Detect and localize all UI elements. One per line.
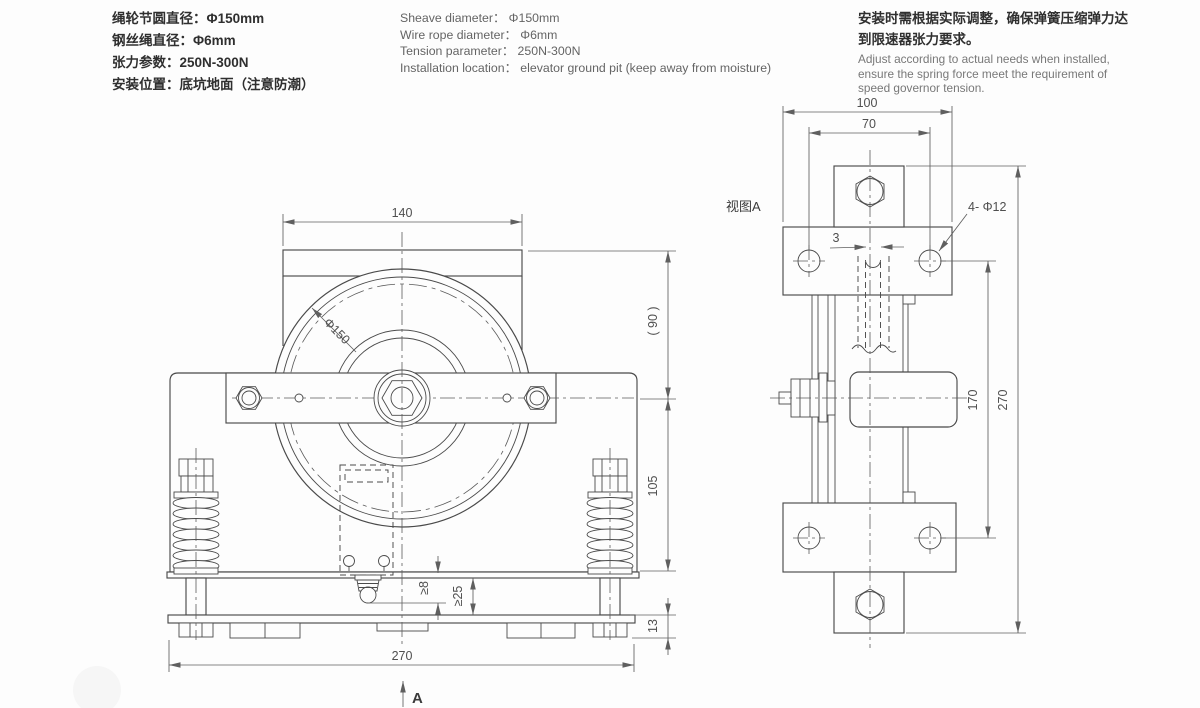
svg-text:( 90 ): ( 90 ) <box>646 306 660 335</box>
dim-ge25: ≥25 <box>451 578 473 615</box>
dim-13: 13 <box>630 598 676 655</box>
svg-text:≥25: ≥25 <box>451 586 465 607</box>
svg-text:270: 270 <box>996 390 1010 411</box>
side-view: 100 70 3 4- Φ12 <box>726 96 1026 648</box>
svg-text:170: 170 <box>966 390 980 411</box>
svg-text:140: 140 <box>392 206 413 220</box>
technical-drawing: Φ150 140 ( 90 ) 105 <box>0 0 1200 708</box>
svg-text:105: 105 <box>646 476 660 497</box>
svg-text:70: 70 <box>862 117 876 131</box>
front-view: Φ150 140 ( 90 ) 105 <box>167 206 676 707</box>
side-view-title: 视图A <box>726 199 761 214</box>
section-arrow-a: A <box>403 681 423 707</box>
svg-text:270: 270 <box>392 649 413 663</box>
svg-text:100: 100 <box>857 96 878 110</box>
dim-140: 140 <box>283 206 522 246</box>
dim-270-front: 270 <box>169 640 634 672</box>
side-adjuster-bolt <box>779 373 835 422</box>
svg-text:13: 13 <box>646 619 660 633</box>
svg-text:A: A <box>412 690 423 707</box>
plunger <box>355 575 381 603</box>
svg-text:4- Φ12: 4- Φ12 <box>968 200 1007 214</box>
svg-text:3: 3 <box>833 231 840 245</box>
svg-text:≥8: ≥8 <box>417 581 431 595</box>
drawing-page: 绳轮节圆直径：Φ150mm 钢丝绳直径：Φ6mm 张力参数：250N-300N … <box>0 0 1200 708</box>
watermark-circle <box>73 666 121 708</box>
